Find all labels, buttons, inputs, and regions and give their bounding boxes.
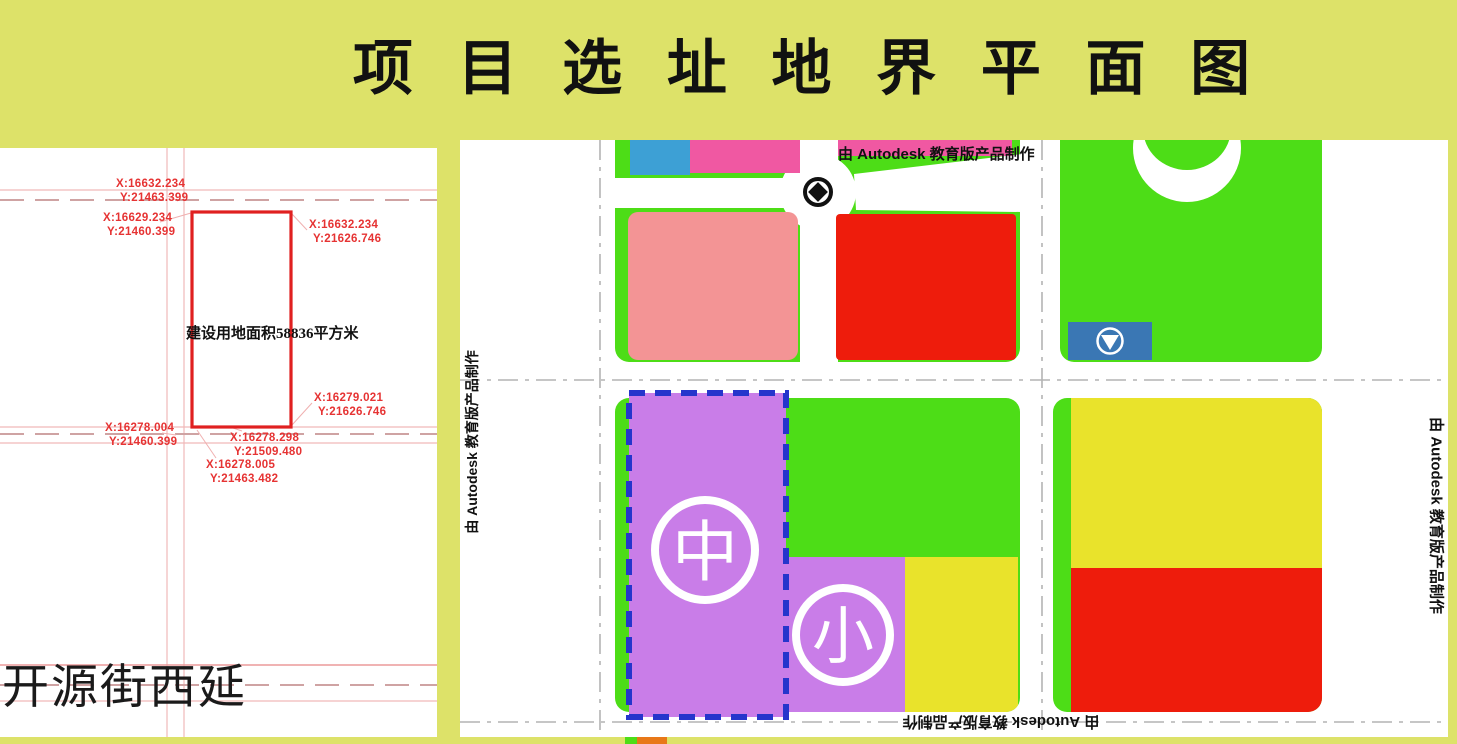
yellow-parcel-southeast [1071, 390, 1331, 568]
street-name-label: 开源街西延 [2, 648, 247, 717]
land-area-label: 建设用地面积58836平方米 [186, 322, 359, 343]
middle-school-symbol: 中 [672, 515, 738, 589]
coordinate-x: X:16632.234 [309, 219, 381, 233]
primary-school-symbol: 小 [812, 603, 874, 672]
coordinate-label: X:16632.234 Y:21626.746 [309, 219, 381, 246]
autodesk-watermark-right: 由 Autodesk 教育版产品制作 [1427, 331, 1448, 701]
coordinate-label: X:16278.005 Y:21463.482 [206, 459, 278, 486]
roundabout-icon [805, 179, 831, 205]
cad-site-plan-panel: X:16632.234 Y:21463.399 X:16629.234 Y:21… [0, 148, 437, 737]
coordinate-label: X:16278.004 Y:21460.399 [105, 422, 177, 449]
coordinate-y: Y:21626.746 [314, 406, 386, 420]
salmon-parcel [628, 212, 798, 360]
red-parcel-southeast [1071, 568, 1331, 718]
coordinate-y: Y:21460.399 [103, 226, 175, 240]
site-boundary-rectangle [192, 212, 291, 427]
yellow-parcel-southwest [905, 557, 1018, 712]
block-northwest [610, 140, 1022, 376]
autodesk-watermark-bottom: 由 Autodesk 教育版产品制作 [846, 712, 1156, 733]
bottom-strip-orange-parcel [637, 737, 667, 744]
coordinate-label: X:16629.234 Y:21460.399 [103, 212, 175, 239]
coordinate-y: Y:21509.480 [230, 446, 302, 460]
coordinate-label: X:16278.298 Y:21509.480 [230, 432, 302, 459]
zoning-map-panel: 中 小 由 Autodesk 教育版产品制作 由 Autodesk 教育版产品制… [460, 140, 1448, 737]
coordinate-y: Y:21626.746 [309, 233, 381, 247]
page-title: 项 目 选 址 地 界 平 面 图 [0, 20, 1457, 107]
coordinate-x: X:16278.298 [230, 432, 302, 446]
road-west [610, 178, 790, 208]
coordinate-y: Y:21463.482 [206, 473, 278, 487]
coordinate-x: X:16278.005 [206, 459, 278, 473]
autodesk-watermark-left: 由 Autodesk 教育版产品制作 [462, 312, 482, 572]
blue-parcel [630, 140, 690, 175]
coordinate-label: X:16279.021 Y:21626.746 [314, 392, 386, 419]
coordinate-y: Y:21463.399 [116, 192, 188, 206]
autodesk-watermark-top: 由 Autodesk 教育版产品制作 [838, 143, 1035, 164]
coordinate-x: X:16632.234 [116, 178, 188, 192]
coordinate-x: X:16629.234 [103, 212, 175, 226]
coordinate-y: Y:21460.399 [105, 436, 177, 450]
zoning-map: 中 小 [460, 140, 1448, 737]
coordinate-x: X:16279.021 [314, 392, 386, 406]
coordinate-label: X:16632.234 Y:21463.399 [116, 178, 188, 205]
red-parcel-northwest [836, 214, 1016, 360]
bottom-strip-green-parcel [625, 737, 637, 744]
block-northeast [1060, 140, 1322, 362]
block-southeast [1053, 390, 1331, 718]
coordinate-x: X:16278.004 [105, 422, 177, 436]
magenta-parcel-west [690, 140, 800, 173]
